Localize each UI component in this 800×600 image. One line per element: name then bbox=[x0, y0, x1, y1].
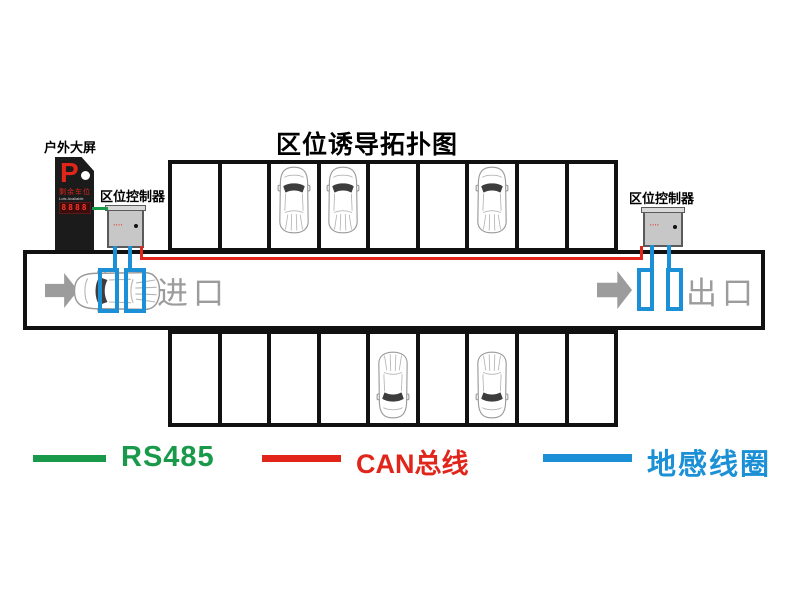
parking-space bbox=[172, 164, 222, 248]
parked-car bbox=[475, 339, 509, 419]
sign-dot-icon bbox=[81, 171, 90, 180]
car-top-view bbox=[475, 351, 509, 419]
legend-ground-loop-label: 地感线圈 bbox=[647, 441, 771, 483]
parking-space bbox=[519, 334, 569, 423]
coil-feed-line bbox=[113, 246, 117, 270]
coil-feed-line bbox=[667, 245, 671, 270]
parking-space bbox=[370, 334, 420, 423]
can-bus-cable-horizontal bbox=[140, 257, 643, 260]
parking-space bbox=[321, 334, 371, 423]
parking-space bbox=[420, 164, 470, 248]
parking-space bbox=[519, 164, 569, 248]
outdoor-display-sign: P 剩余车位 Lots Available 8888 bbox=[55, 157, 94, 250]
sign-led-counter: 8888 bbox=[59, 202, 91, 214]
legend-ground-loop-swatch bbox=[543, 454, 632, 462]
parking-space bbox=[469, 164, 519, 248]
zone-controller-left: ▪▪▪▪ bbox=[107, 205, 144, 248]
car-top-view bbox=[326, 166, 360, 234]
parking-p-symbol: P bbox=[60, 157, 79, 189]
parking-row-top bbox=[168, 160, 618, 252]
diagram-title: 区位诱导拓扑图 bbox=[272, 125, 462, 161]
ground-loop-coil bbox=[98, 268, 119, 313]
parking-space bbox=[172, 334, 222, 423]
controller-panel-marks: ▪▪▪▪ bbox=[650, 223, 660, 227]
ground-loop-coil bbox=[124, 268, 146, 313]
parking-space bbox=[370, 164, 420, 248]
coil-feed-line bbox=[128, 246, 132, 270]
controller-knob-icon bbox=[673, 225, 677, 229]
parked-car bbox=[277, 166, 311, 246]
parking-space bbox=[271, 164, 321, 248]
coil-feed-line bbox=[650, 245, 654, 270]
ground-loop-coil bbox=[666, 268, 683, 311]
sign-english-text: Lots Available bbox=[59, 196, 84, 201]
controller-lid bbox=[105, 205, 146, 211]
parking-space bbox=[569, 164, 615, 248]
controller-panel-marks: ▪▪▪▪ bbox=[114, 223, 124, 227]
legend-rs485-swatch bbox=[33, 455, 106, 462]
parked-car bbox=[376, 339, 410, 419]
controller-knob-icon bbox=[134, 224, 138, 228]
rs485-cable bbox=[92, 207, 108, 210]
parking-space bbox=[469, 334, 519, 423]
parking-space bbox=[569, 334, 615, 423]
zone-controller-right-label: 区位控制器 bbox=[629, 188, 694, 207]
parking-space bbox=[271, 334, 321, 423]
parking-space bbox=[222, 334, 272, 423]
exit-label: 出口 bbox=[686, 268, 758, 313]
entrance-label: 进口 bbox=[157, 268, 229, 313]
parking-row-bottom bbox=[168, 330, 618, 427]
car-top-view bbox=[475, 166, 509, 234]
zone-controller-right: ▪▪▪▪ bbox=[643, 207, 683, 247]
legend-can-bus-label: CAN总线 bbox=[356, 442, 469, 481]
car-top-view bbox=[376, 351, 410, 419]
legend-can-bus-swatch bbox=[262, 455, 341, 462]
parking-guidance-topology-diagram: 区位诱导拓扑图 bbox=[0, 0, 800, 600]
legend-rs485-label: RS485 bbox=[121, 441, 215, 474]
controller-lid bbox=[641, 207, 685, 213]
parked-car bbox=[326, 166, 360, 246]
parked-car bbox=[475, 166, 509, 246]
parking-space bbox=[420, 334, 470, 423]
parking-space bbox=[222, 164, 272, 248]
car-top-view bbox=[277, 166, 311, 234]
ground-loop-coil bbox=[637, 268, 654, 311]
can-bus-cable-riser-right bbox=[640, 246, 643, 259]
parking-space bbox=[321, 164, 371, 248]
zone-controller-left-label: 区位控制器 bbox=[100, 186, 165, 205]
outdoor-screen-label: 户外大屏 bbox=[44, 137, 96, 156]
